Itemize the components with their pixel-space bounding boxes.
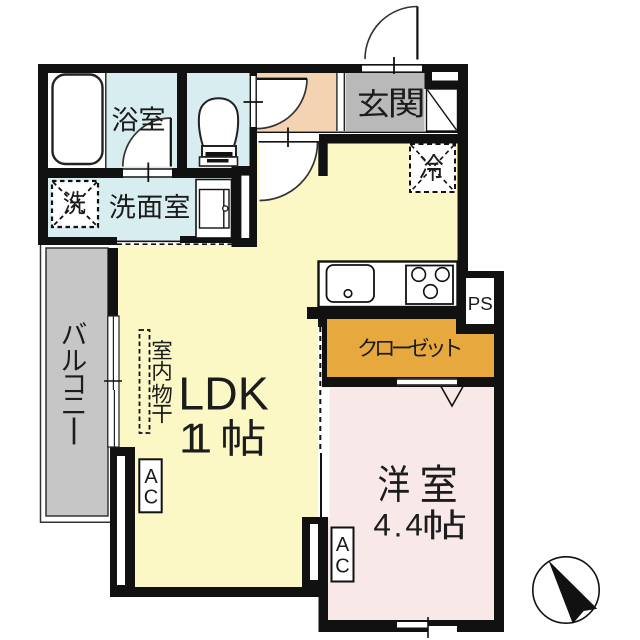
svg-text:4: 4	[373, 507, 391, 543]
svg-text:4: 4	[405, 507, 423, 543]
svg-text:1: 1	[189, 414, 212, 461]
svg-text:PS: PS	[468, 293, 493, 314]
svg-text:C: C	[144, 487, 158, 509]
svg-text:C: C	[335, 555, 349, 577]
svg-text:.: .	[394, 508, 403, 544]
svg-text:A: A	[336, 534, 350, 556]
svg-text:LDK: LDK	[178, 368, 268, 420]
svg-text:A: A	[144, 466, 158, 488]
